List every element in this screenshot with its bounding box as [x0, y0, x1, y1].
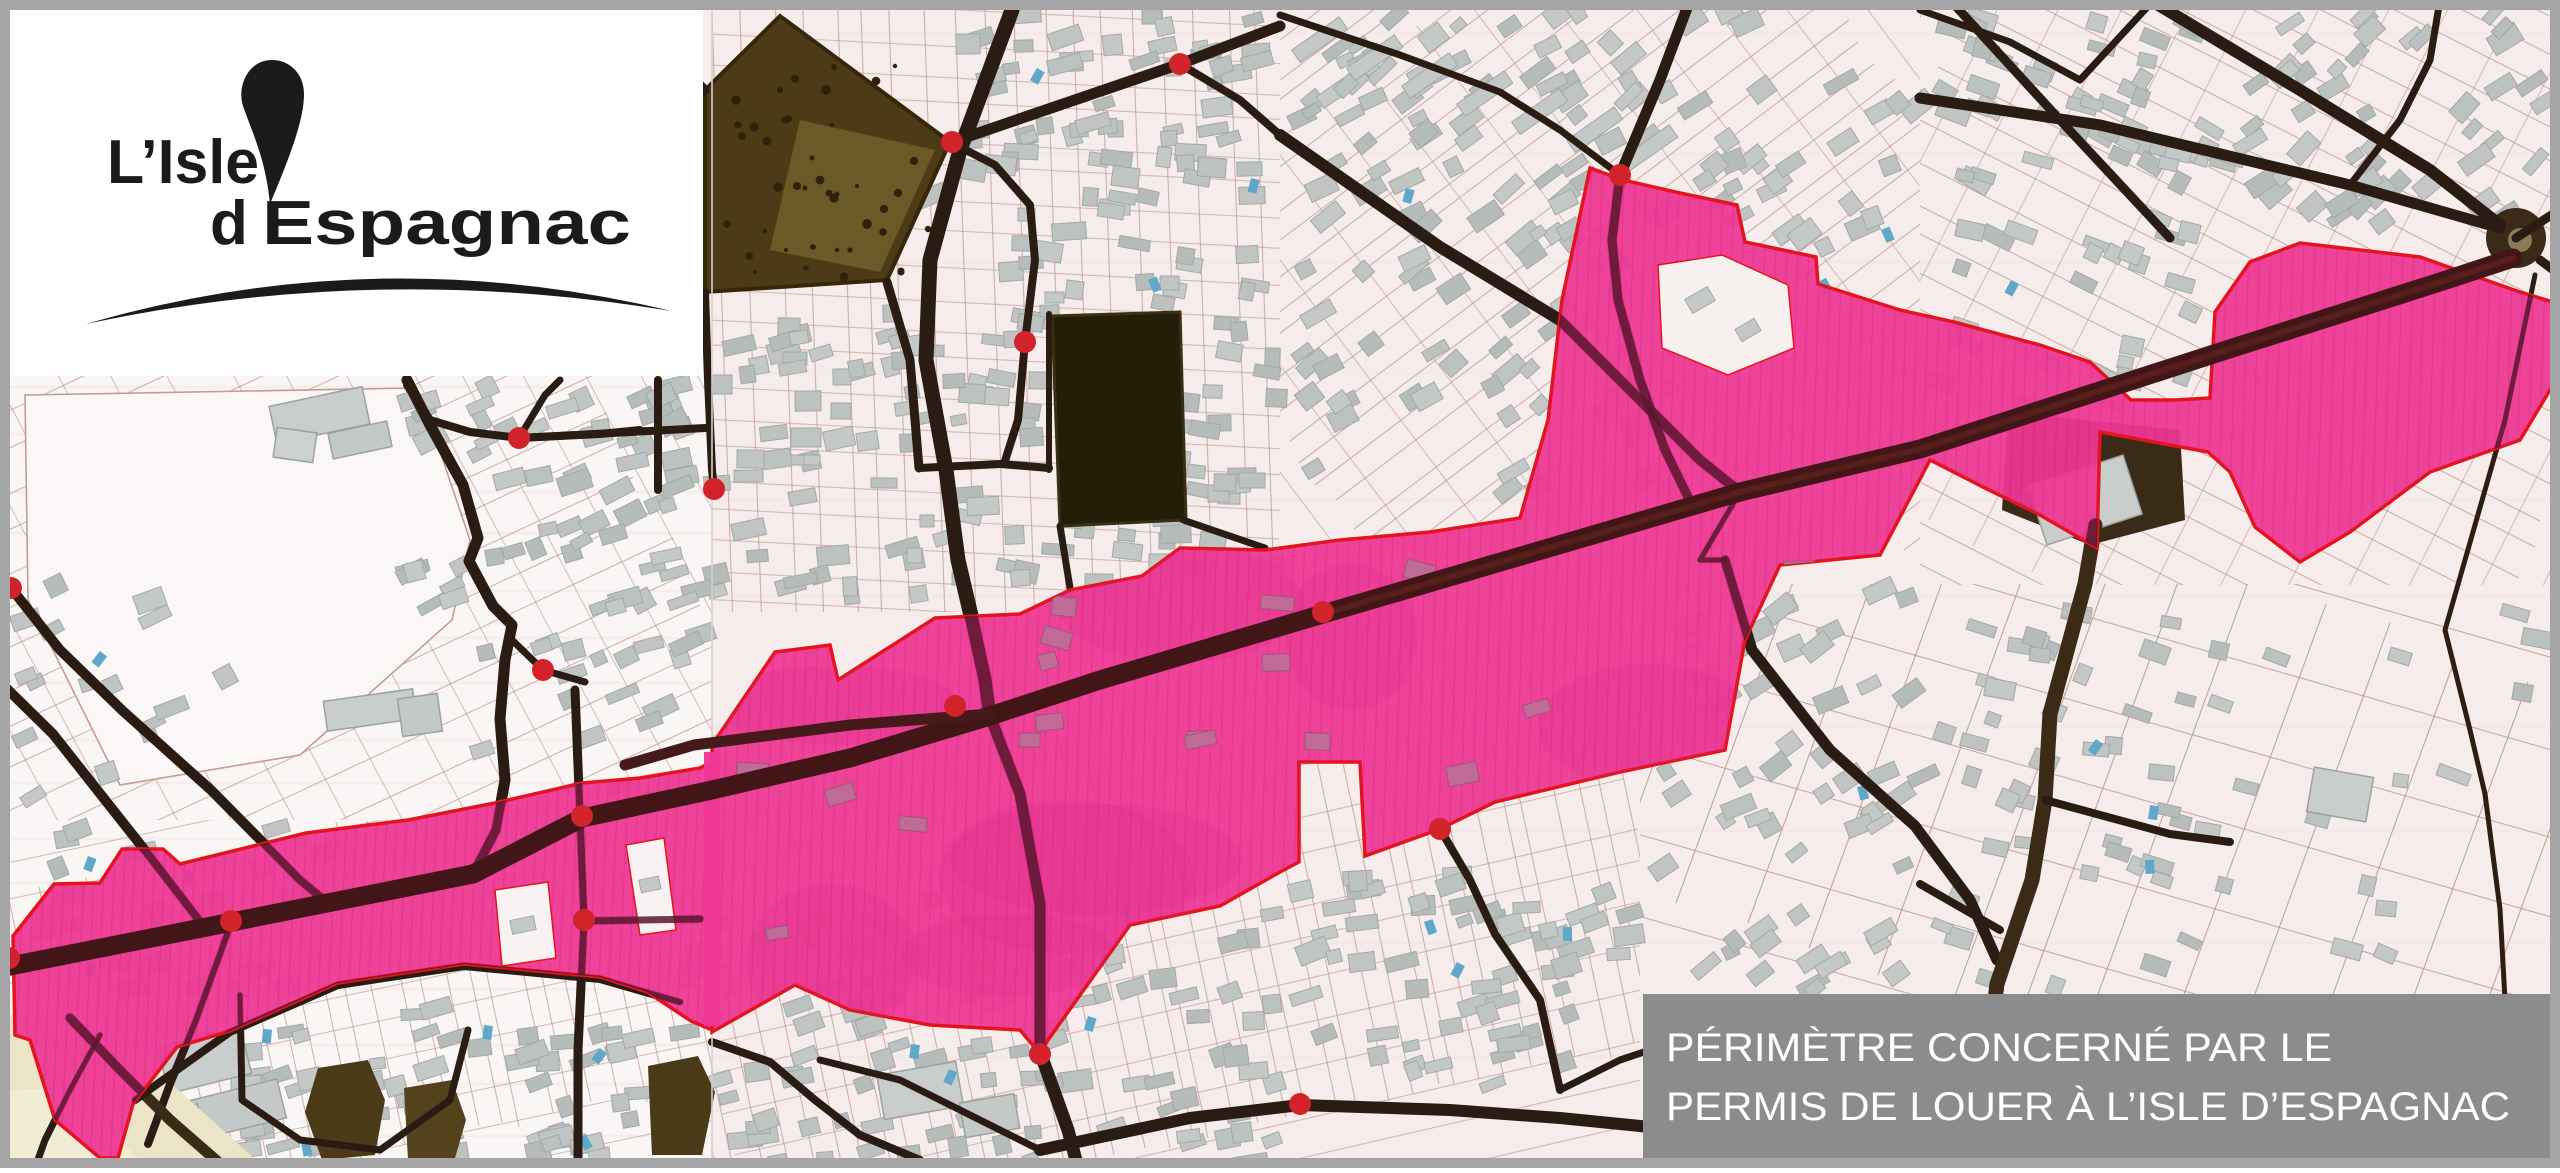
- svg-text:d: d: [210, 189, 248, 258]
- svg-text:Espagnac: Espagnac: [262, 189, 631, 258]
- svg-text:L’Isle: L’Isle: [107, 128, 259, 197]
- svg-text:PÉRIMÈTRE CONCERNÉ PAR LE: PÉRIMÈTRE CONCERNÉ PAR LE: [1666, 1025, 2332, 1070]
- svg-text:PERMIS DE LOUER À L’ISLE D’ESP: PERMIS DE LOUER À L’ISLE D’ESPAGNAC: [1666, 1084, 2510, 1129]
